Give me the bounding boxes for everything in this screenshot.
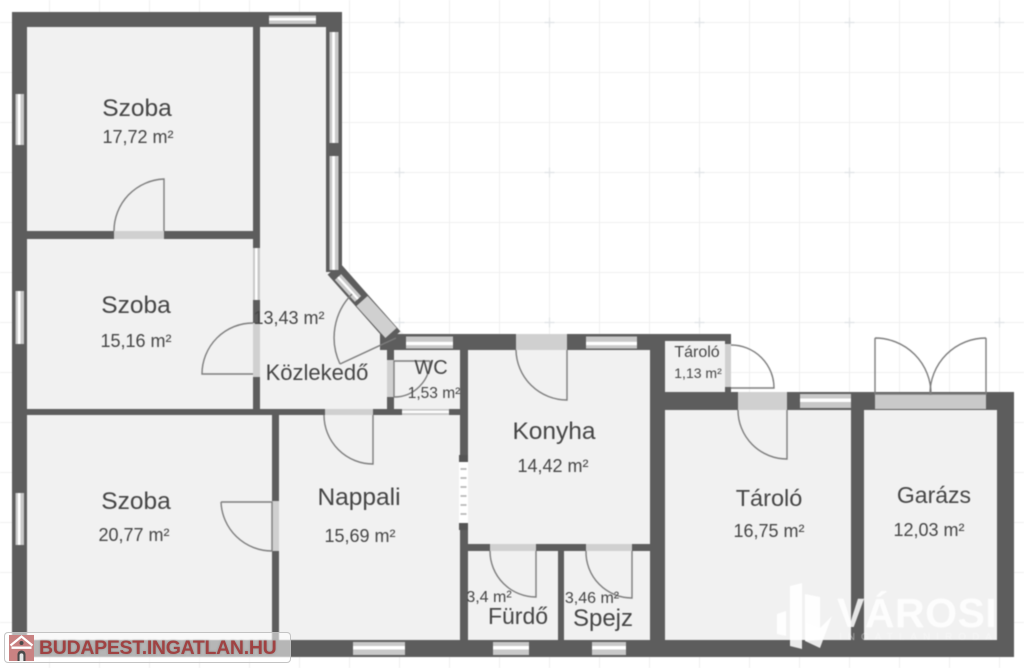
svg-text:13,43 m²: 13,43 m² bbox=[253, 308, 324, 328]
svg-text:15,16 m²: 15,16 m² bbox=[100, 331, 171, 351]
svg-text:Spejz: Spejz bbox=[573, 605, 633, 632]
svg-text:Konyha: Konyha bbox=[512, 418, 595, 445]
svg-text:12,03 m²: 12,03 m² bbox=[893, 520, 964, 540]
svg-text:15,69 m²: 15,69 m² bbox=[324, 526, 395, 546]
svg-text:20,77 m²: 20,77 m² bbox=[98, 525, 169, 545]
svg-text:1,53 m²: 1,53 m² bbox=[408, 385, 461, 402]
svg-text:1,13 m²: 1,13 m² bbox=[674, 365, 722, 381]
svg-text:16,75 m²: 16,75 m² bbox=[733, 521, 804, 541]
svg-text:INGATLANIRODA: INGATLANIRODA bbox=[839, 632, 998, 643]
svg-text:Nappali: Nappali bbox=[317, 484, 400, 511]
svg-text:Fürdő: Fürdő bbox=[488, 603, 548, 629]
svg-text:Tároló: Tároló bbox=[674, 344, 719, 361]
svg-text:Tároló: Tároló bbox=[736, 485, 803, 511]
svg-text:Szoba: Szoba bbox=[101, 488, 171, 515]
svg-text:Szoba: Szoba bbox=[101, 292, 171, 319]
svg-text:17,72 m²: 17,72 m² bbox=[102, 127, 173, 147]
svg-text:14,42 m²: 14,42 m² bbox=[517, 456, 588, 476]
svg-text:Szoba: Szoba bbox=[102, 95, 172, 122]
svg-text:Garázs: Garázs bbox=[897, 482, 971, 508]
svg-text:WC: WC bbox=[414, 357, 447, 379]
svg-text:Közlekedő: Közlekedő bbox=[266, 360, 369, 385]
svg-text:VÁROSI: VÁROSI bbox=[837, 590, 997, 636]
